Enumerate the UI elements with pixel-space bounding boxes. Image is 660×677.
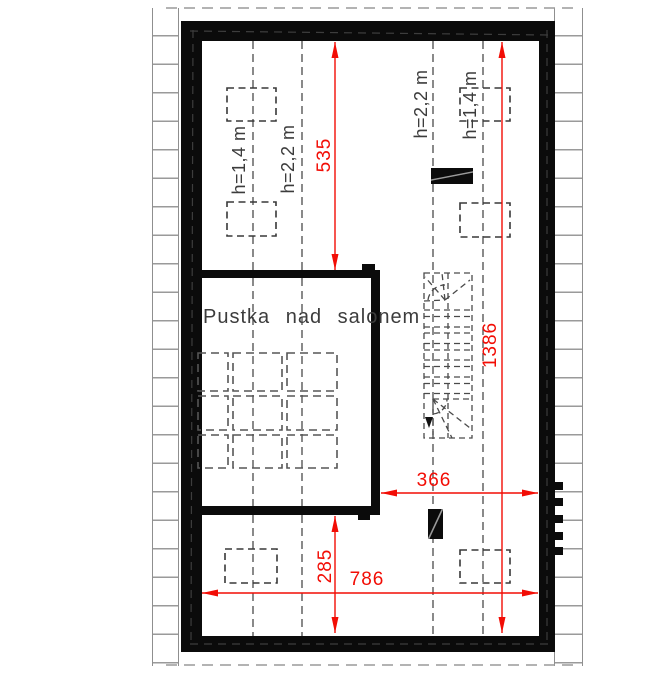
wall-vent-tooth — [553, 532, 563, 540]
height-label-right-high: h=2,2 m — [411, 69, 431, 139]
void-glass-grid — [198, 353, 337, 468]
glass-grid-cell — [198, 396, 228, 430]
dim-total-length: 1386 — [481, 320, 501, 370]
staircase — [424, 273, 472, 438]
chimney-bottom — [428, 509, 443, 539]
room-label: Pustka nad salonem — [203, 306, 368, 329]
dim-upper-segment: 535 — [315, 135, 335, 175]
height-label-left-low: h=1,4 m — [229, 125, 249, 195]
wall-vent-tooth — [553, 515, 563, 523]
glass-grid-cell — [287, 435, 337, 468]
wall-vent-tooth — [553, 498, 563, 506]
dim-stair-opening: 366 — [409, 470, 459, 492]
roof-window — [227, 202, 276, 236]
height-label-left-high: h=2,2 m — [278, 124, 298, 194]
glass-grid-cell — [287, 396, 337, 430]
floor-plan: Pustka nad salonem h=1,4 m h=2,2 m h=2,2… — [0, 0, 660, 677]
glass-grid-cell — [233, 435, 282, 468]
height-label-right-low: h=1,4 m — [460, 70, 480, 140]
glass-grid-cell — [198, 353, 228, 391]
glass-grid-cell — [287, 353, 337, 391]
dim-lower-segment: 285 — [316, 546, 336, 586]
glass-grid-cell — [233, 353, 282, 391]
stair-direction-arrow — [425, 417, 433, 428]
wall-vent-tooth — [553, 547, 563, 555]
roof-window — [225, 549, 277, 583]
glass-grid-cell — [198, 435, 228, 468]
roof-window — [227, 88, 276, 121]
dim-total-width: 786 — [342, 569, 392, 591]
wall-vent-tooth — [553, 482, 563, 490]
chimney-top — [431, 168, 473, 184]
glass-grid-cell — [233, 396, 282, 430]
roof-windows — [225, 88, 510, 583]
